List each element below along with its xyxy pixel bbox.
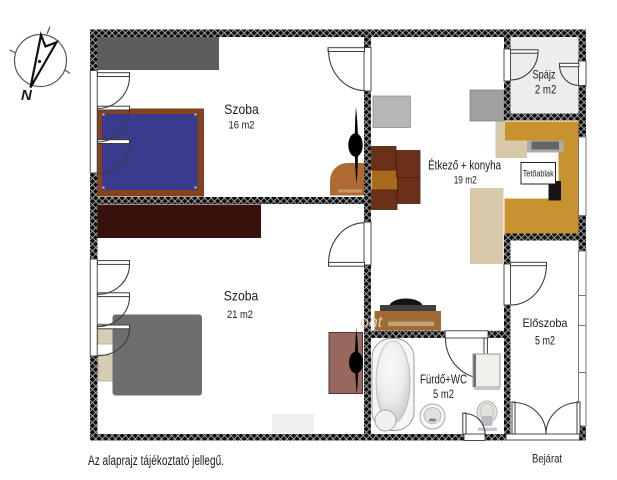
svg-text:Szoba: Szoba — [224, 101, 259, 117]
svg-text:2 m2: 2 m2 — [535, 83, 557, 97]
svg-text:ont: ont — [360, 314, 383, 331]
svg-text:21 m2: 21 m2 — [227, 309, 253, 321]
svg-text:5 m2: 5 m2 — [535, 336, 555, 348]
svg-text:Az alaprajz tájékoztató jelleg: Az alaprajz tájékoztató jellegű. — [88, 453, 224, 468]
svg-text:Fürdő+WC: Fürdő+WC — [420, 373, 467, 387]
svg-text:N: N — [21, 87, 33, 104]
svg-text:Spájz: Spájz — [533, 68, 556, 82]
svg-text:Szoba: Szoba — [224, 288, 259, 304]
svg-text:Tetőablak: Tetőablak — [523, 169, 554, 179]
svg-text:19 m2: 19 m2 — [454, 175, 477, 187]
svg-text:Előszoba: Előszoba — [523, 316, 568, 330]
svg-text:16 m2: 16 m2 — [229, 120, 255, 132]
svg-text:Bejárat: Bejárat — [532, 451, 563, 465]
svg-text:Étkező + konyha: Étkező + konyha — [428, 158, 501, 173]
svg-text:5 m2: 5 m2 — [433, 389, 454, 401]
